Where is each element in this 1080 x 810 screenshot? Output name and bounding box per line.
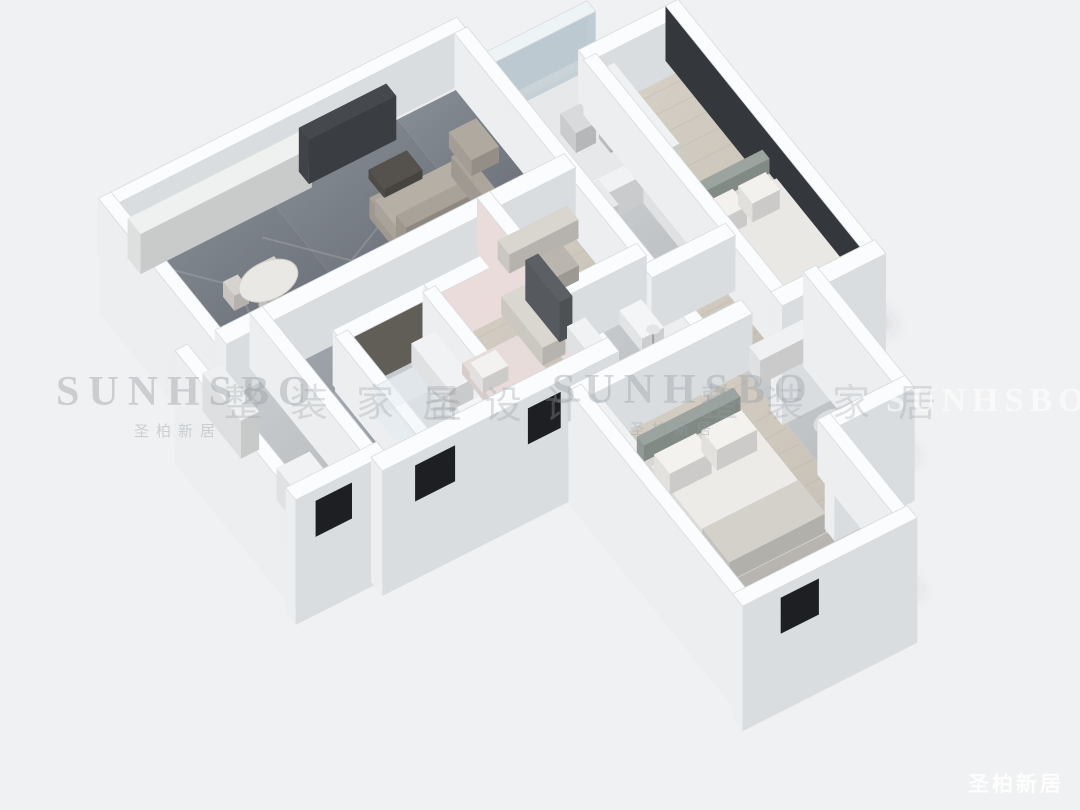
floorplan-svg	[0, 0, 1080, 810]
watermark-corner-logo: 圣柏新居	[968, 768, 1064, 798]
floorplan-scene	[0, 0, 1080, 810]
floorplan-render-image: SUNHSBO 圣柏新居 整装家居 圣设计 SUNHSBO 圣柏新居 整装家居 …	[0, 0, 1080, 810]
